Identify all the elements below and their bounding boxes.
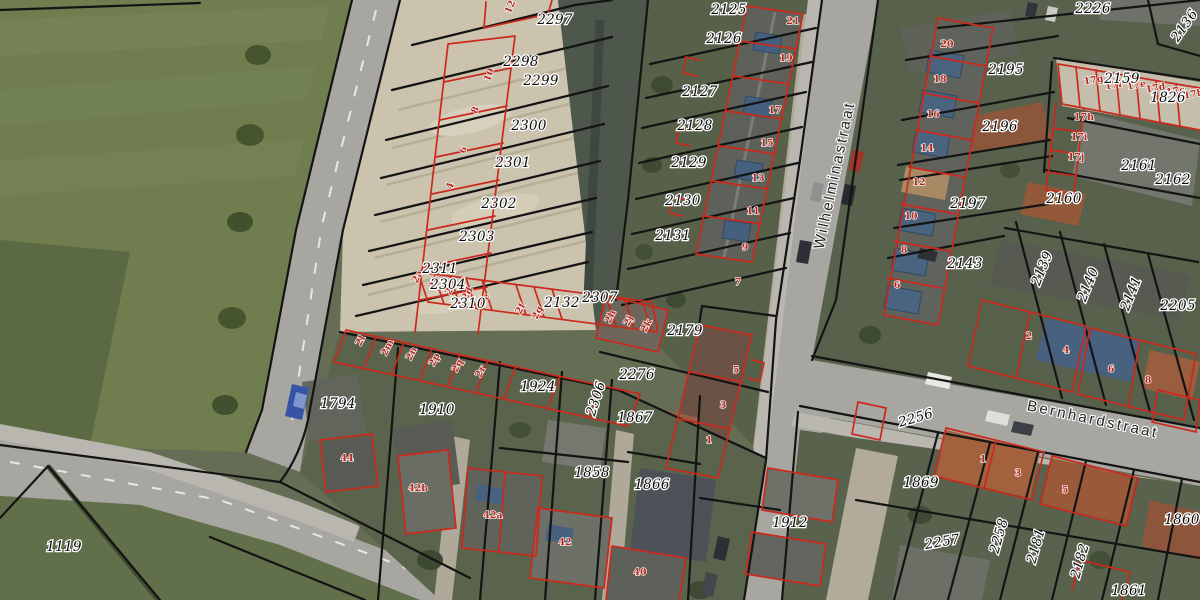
house-number-label-10: 10 (904, 211, 918, 222)
house-number-label-13: 13 (751, 173, 764, 184)
house-number-label-18: 18 (933, 74, 947, 85)
parcel-label-2276: 2276 (618, 367, 655, 383)
map-viewport[interactable]: 2119171513119753112108642018161412108617… (0, 0, 1200, 600)
house-number-label-17: 17 (768, 105, 781, 116)
house-number-label-6: 6 (894, 280, 901, 291)
house-number-label-44: 44 (340, 453, 354, 464)
house-number-label-3: 3 (720, 400, 727, 411)
house-number-label-9: 9 (742, 242, 749, 253)
parcel-label-1794: 1794 (320, 396, 356, 412)
parcel-label-2311: 2311 (421, 261, 458, 277)
house-number-label-15: 15 (760, 138, 773, 149)
parcel-label-2131: 2131 (654, 228, 691, 244)
parcel-label-2297: 2297 (536, 12, 573, 28)
parcel-label-1858: 1858 (574, 465, 610, 481)
house-number-label-20: 20 (940, 39, 954, 50)
parcel-label-2302: 2302 (480, 196, 517, 212)
parcel-label-2143: 2143 (946, 256, 983, 272)
house-number-label-3: 3 (1015, 468, 1022, 479)
house-number-label-12: 12 (912, 177, 925, 188)
parcel-label-2300: 2300 (510, 118, 547, 134)
parcel-label-2132: 2132 (543, 295, 580, 311)
map-canvas[interactable]: 2119171513119753112108642018161412108617… (0, 0, 1200, 600)
parcel-label-2179: 2179 (666, 323, 703, 339)
parcel-label-2195: 2195 (987, 62, 1024, 78)
parcel-label-2303: 2303 (458, 229, 495, 245)
house-number-label-17j: 17j (1068, 152, 1085, 163)
parcel-label-2301: 2301 (494, 155, 531, 171)
house-number-label-42b: 42b (408, 483, 428, 494)
parcel-label-2129: 2129 (670, 155, 707, 171)
parcel-label-2126: 2126 (705, 31, 742, 47)
house-number-label-7: 7 (735, 277, 742, 288)
house-number-label-17i: 17i (1071, 132, 1088, 143)
parcel-label-2196: 2196 (981, 119, 1018, 135)
parcel-label-2127: 2127 (681, 84, 718, 100)
parcel-label-2298: 2298 (502, 54, 539, 70)
parcel-label-1866: 1866 (634, 477, 670, 493)
parcel-label-2130: 2130 (664, 193, 701, 209)
parcel-label-2299: 2299 (522, 73, 559, 89)
parcel-label-1860: 1860 (1164, 512, 1200, 528)
house-number-label-6: 6 (1108, 364, 1115, 375)
house-number-label-40: 40 (633, 567, 647, 578)
parcel-label-1867: 1867 (617, 410, 653, 426)
parcel-label-2159: 2159 (1103, 71, 1140, 87)
house-number-label-4: 4 (1063, 345, 1070, 356)
parcel-label-1912: 1912 (772, 515, 808, 531)
parcel-label-1119: 1119 (46, 539, 82, 555)
house-number-label-1: 1 (706, 435, 713, 446)
house-number-label-5: 5 (733, 365, 740, 376)
parcel-label-2310: 2310 (449, 296, 486, 312)
parcel-label-2160: 2160 (1045, 191, 1082, 207)
house-number-label-11: 11 (746, 206, 759, 217)
parcel-label-2205: 2205 (1159, 298, 1196, 314)
house-number-label-21: 21 (786, 16, 799, 27)
house-number-label-14: 14 (920, 143, 934, 154)
parcel-label-1826: 1826 (1150, 90, 1186, 106)
house-number-label-19: 19 (779, 53, 793, 64)
parcel-label-1910: 1910 (419, 402, 455, 418)
house-number-label-42a: 42a (483, 510, 502, 521)
parcel-label-2226: 2226 (1074, 1, 1111, 17)
parcel-label-2197: 2197 (949, 196, 986, 212)
parcel-label-1861: 1861 (1111, 583, 1147, 599)
parcel-label-2125: 2125 (710, 2, 747, 18)
house-number-label-5: 5 (1062, 485, 1069, 496)
house-number-label-8: 8 (901, 245, 908, 256)
parcel-label-2162: 2162 (1154, 172, 1191, 188)
house-number-label-42: 42 (558, 537, 571, 548)
parcel-label-2161: 2161 (1120, 158, 1157, 174)
parcel-label-1869: 1869 (903, 475, 939, 491)
house-number-label-8: 8 (1145, 375, 1152, 386)
house-number-label-2: 2 (1026, 331, 1033, 342)
house-number-label-16: 16 (926, 109, 940, 120)
parcel-label-2307: 2307 (581, 290, 618, 306)
parcel-label-1924: 1924 (520, 379, 556, 395)
house-number-label-1: 1 (980, 454, 987, 465)
parcel-label-2304: 2304 (429, 277, 466, 293)
house-number-label-17h: 17h (1074, 112, 1094, 123)
parcel-label-2128: 2128 (676, 118, 713, 134)
